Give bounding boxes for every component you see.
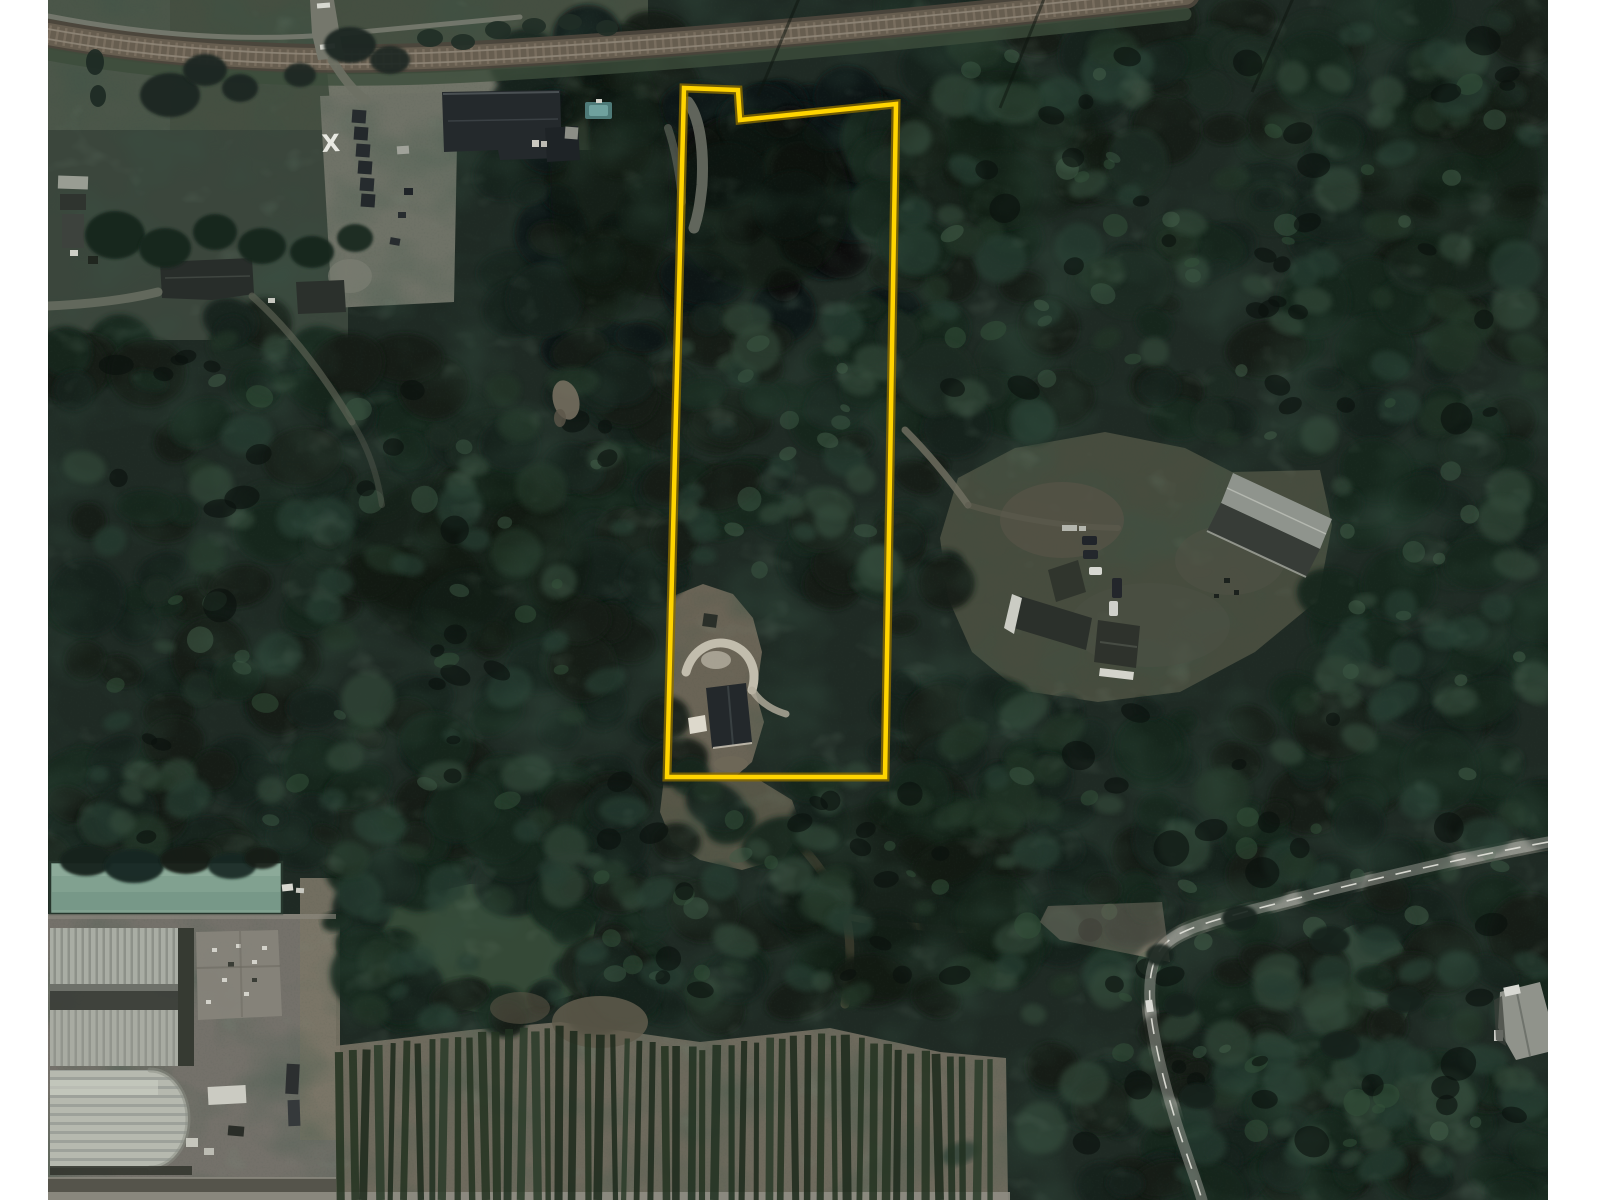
ground-marking-x: X [321, 129, 341, 158]
aerial-photo: X [15, 0, 1596, 1200]
photo-grain [48, 0, 1548, 1200]
aerial-parcel-map: X [0, 0, 1600, 1200]
left-film-margin [0, 0, 48, 1200]
right-film-margin [1548, 0, 1600, 1200]
satellite-imagery: X [0, 0, 1600, 1200]
